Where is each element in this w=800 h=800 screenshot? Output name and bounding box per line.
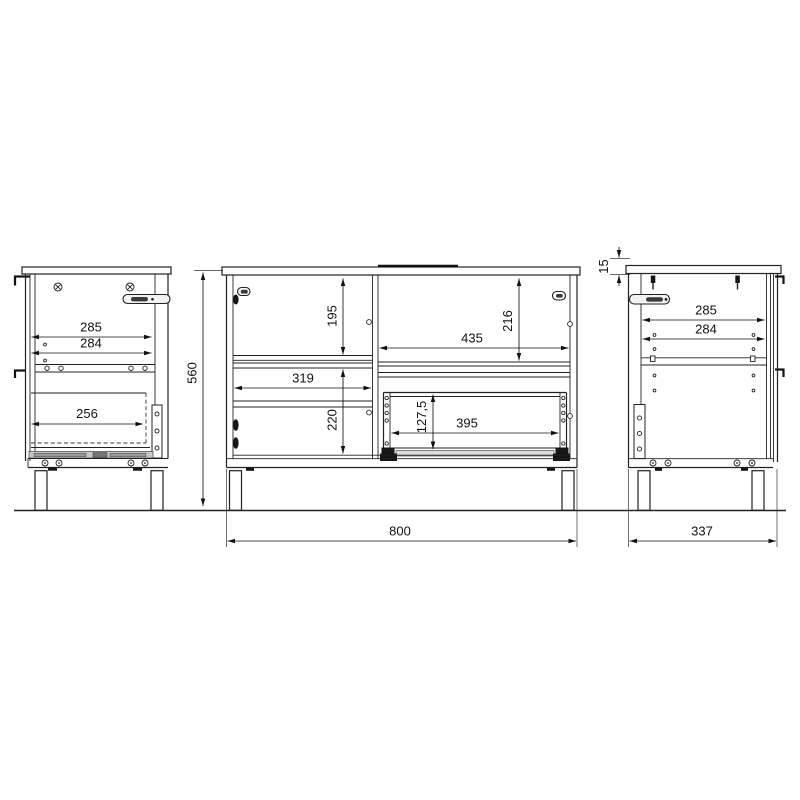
middle-rail	[35, 365, 155, 373]
drawer-slide-rail-icon	[630, 295, 670, 305]
top-panel	[22, 267, 171, 274]
dim-319: 319	[235, 371, 372, 389]
pin-hole	[44, 343, 47, 346]
dim-label: 285	[695, 303, 717, 318]
dim-15: 15	[596, 247, 630, 286]
cam-screw-icon	[126, 283, 134, 291]
dim-label: 285	[80, 320, 102, 335]
dim-127-5: 127,5	[414, 395, 433, 450]
side-walls	[227, 275, 578, 468]
dim-800: 800	[227, 469, 578, 547]
right-shelf	[378, 362, 570, 377]
leg	[230, 471, 242, 511]
dim-label: 256	[76, 406, 98, 421]
dim-label: 220	[325, 409, 340, 431]
front-view: 560 195	[185, 266, 581, 547]
top-panel	[222, 267, 580, 275]
dim-label: 395	[456, 416, 478, 431]
dim-285-right: 285	[643, 303, 765, 321]
shelf-pin	[651, 356, 656, 362]
pin-hole	[568, 414, 573, 419]
middle-shelf	[641, 356, 767, 365]
dim-195: 195	[325, 279, 344, 355]
leg	[151, 471, 163, 511]
mounting-plate	[634, 405, 645, 459]
leg	[638, 471, 650, 511]
dim-label: 216	[500, 310, 515, 332]
dim-label: 284	[80, 336, 102, 351]
dim-285-left: 285	[32, 320, 152, 338]
mounting-plate	[152, 405, 162, 458]
leg-fitting	[655, 468, 662, 471]
hinge-icon	[233, 419, 239, 431]
leg	[752, 471, 764, 511]
pin-holes	[653, 334, 755, 392]
left-side-view: 285 284 256	[14, 267, 171, 510]
leg-fitting	[48, 468, 57, 471]
screw-icon	[650, 460, 755, 466]
pin-hole	[568, 322, 573, 327]
dim-label: 337	[691, 524, 713, 539]
pin-hole	[367, 410, 372, 415]
cabinet-dimension-drawing: 285 284 256	[0, 0, 800, 800]
bolt-icon	[651, 276, 740, 290]
dim-label: 319	[292, 371, 314, 386]
leg	[35, 471, 47, 511]
pin-hole	[367, 320, 372, 325]
leg-fitting	[133, 468, 142, 471]
technical-drawing-page: 285 284 256	[0, 0, 800, 800]
dim-label: 435	[461, 331, 483, 346]
dim-284-right: 284	[643, 322, 765, 340]
hinge-icon	[233, 437, 239, 449]
dim-label: 15	[596, 259, 611, 273]
dim-560: 560	[185, 271, 224, 507]
center-divider	[373, 275, 379, 459]
cam-lock-icon	[553, 292, 566, 301]
dim-label: 800	[389, 524, 411, 539]
dim-284-left: 284	[32, 336, 152, 354]
screw-icon	[42, 460, 148, 466]
leg	[562, 471, 574, 511]
dim-label: 284	[695, 322, 717, 337]
right-side-view: 15 285	[596, 247, 785, 547]
drawer-slide-rail-icon	[123, 295, 170, 304]
dim-label: 127,5	[414, 401, 429, 434]
leg-fitting	[547, 468, 555, 471]
bottom-panel	[227, 455, 578, 467]
dim-label: 560	[185, 362, 200, 384]
bottom-slide-rail	[29, 452, 153, 459]
cam-lock-icon	[233, 288, 250, 305]
door-edge-profile	[14, 277, 30, 379]
dim-435: 435	[380, 331, 569, 349]
door-edge-profile	[775, 277, 785, 378]
pin-hole	[44, 359, 47, 362]
drawer: 127,5 395	[380, 393, 570, 462]
dim-label: 195	[325, 305, 340, 327]
cam-screw-icon	[54, 283, 62, 291]
leg-fitting	[246, 468, 254, 471]
shelf-pin	[751, 356, 756, 362]
leg-fitting	[741, 468, 748, 471]
dim-220: 220	[325, 370, 344, 454]
top-panel	[626, 266, 781, 274]
dim-256: 256	[32, 406, 144, 424]
